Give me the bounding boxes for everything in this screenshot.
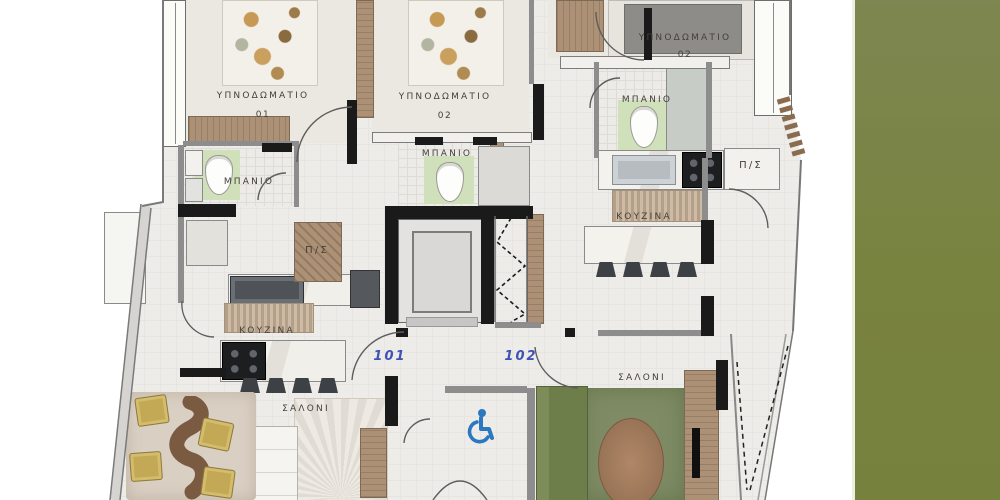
wardrobe-left [188, 116, 290, 144]
wall-segment [178, 217, 184, 303]
wall-black [716, 360, 728, 410]
room-label-bedroom-right: ΥΠΝΟΔΩΜΑΤΙΟ [639, 33, 731, 43]
room-label-bath-left: ΜΠΑΝΙΟ [224, 177, 274, 187]
unit-number-102: 102 [504, 349, 537, 364]
wall-segment [594, 62, 599, 158]
kitchen-right-sink [612, 155, 676, 185]
kitchen-left-fridge [186, 220, 228, 266]
room-label-bedroom-mid: ΥΠΝΟΔΩΜΑΤΙΟ [399, 92, 491, 102]
wall-black [701, 220, 714, 264]
elevator-cab [412, 231, 472, 313]
terrace-chair [134, 394, 170, 427]
wall-segment [445, 386, 527, 393]
coffee-table-oval [598, 418, 664, 500]
wall-segment [527, 388, 535, 500]
room-label-bath-mid: ΜΠΑΝΙΟ [422, 149, 472, 159]
room-label-bath-right: ΜΠΑΝΙΟ [622, 95, 672, 105]
room-number-bedroom-right: 02 [678, 50, 692, 60]
shower-mid [478, 146, 530, 206]
kitchen-left-sink [230, 276, 304, 304]
side-panel [852, 0, 1000, 500]
stove-left [222, 342, 266, 380]
window-right [754, 0, 792, 116]
wall-black [385, 206, 398, 324]
room-label-kitchen-left: ΚΟΥΖΙΝΑ [239, 326, 295, 336]
wall-black [180, 368, 226, 377]
wall-segment [178, 145, 184, 205]
wardrobe-right [556, 0, 604, 52]
wall-segment [529, 0, 534, 84]
floor-plan-canvas: ΥΠΝΟΔΩΜΑΤΙΟ 01 ΥΠΝΟΔΩΜΑΤΙΟ 02 ΥΠΝΟΔΩΜΑΤΙ… [0, 0, 1000, 500]
wall-segment [706, 62, 712, 158]
wall-black [385, 206, 533, 219]
stair-side-panel [527, 214, 544, 324]
room-label-storage-right: Π/Σ [739, 160, 763, 171]
wall-black [178, 204, 236, 217]
unit-number-101: 101 [373, 349, 406, 364]
bed-double-left [222, 0, 318, 86]
wall-segment [372, 132, 532, 143]
tv-unit-right [684, 370, 719, 500]
wall-black [385, 376, 398, 426]
terrace-chair [200, 466, 236, 499]
window-left [163, 0, 186, 147]
shower-right [666, 66, 710, 156]
room-label-living-right: ΣΑΛΟΝΙ [618, 373, 666, 383]
bath-left-sink [185, 150, 203, 176]
wall-segment [495, 322, 541, 328]
wall-black [701, 296, 714, 336]
tv-screen [692, 428, 700, 478]
kitchen-right-island [584, 226, 704, 264]
kitchen-left-tall-unit [350, 270, 380, 308]
shaft-left [104, 212, 146, 304]
bed-right-mattress [624, 4, 742, 54]
wall-segment [598, 330, 704, 336]
room-label-kitchen-right: ΚΟΥΖΙΝΑ [616, 212, 672, 222]
terrace-chair [129, 451, 163, 482]
wall-segment [702, 158, 708, 220]
elevator-door-sill [406, 317, 478, 327]
door-jamb [396, 328, 408, 337]
wall-black [415, 137, 443, 145]
washer-left [185, 178, 203, 202]
room-label-living-left: ΣΑΛΟΝΙ [282, 404, 330, 414]
bed-double-mid [408, 0, 504, 86]
door-jamb [347, 100, 357, 164]
wall-black [533, 84, 544, 140]
sideboard-left [360, 428, 387, 498]
room-label-bedroom-left: ΥΠΝΟΔΩΜΑΤΙΟ [217, 91, 309, 101]
wall-black [481, 206, 494, 324]
wall-black [473, 137, 497, 145]
wardrobe-mid [356, 0, 374, 118]
wall-black [262, 143, 292, 152]
room-number-bedroom-left: 01 [256, 110, 270, 120]
door-jamb [565, 328, 575, 337]
sofa-right-green [536, 386, 588, 500]
terrace-chair [197, 417, 234, 452]
wall-segment [294, 145, 299, 207]
room-number-bedroom-mid: 02 [438, 111, 452, 121]
room-label-storage-left: Π/Σ [305, 245, 329, 256]
